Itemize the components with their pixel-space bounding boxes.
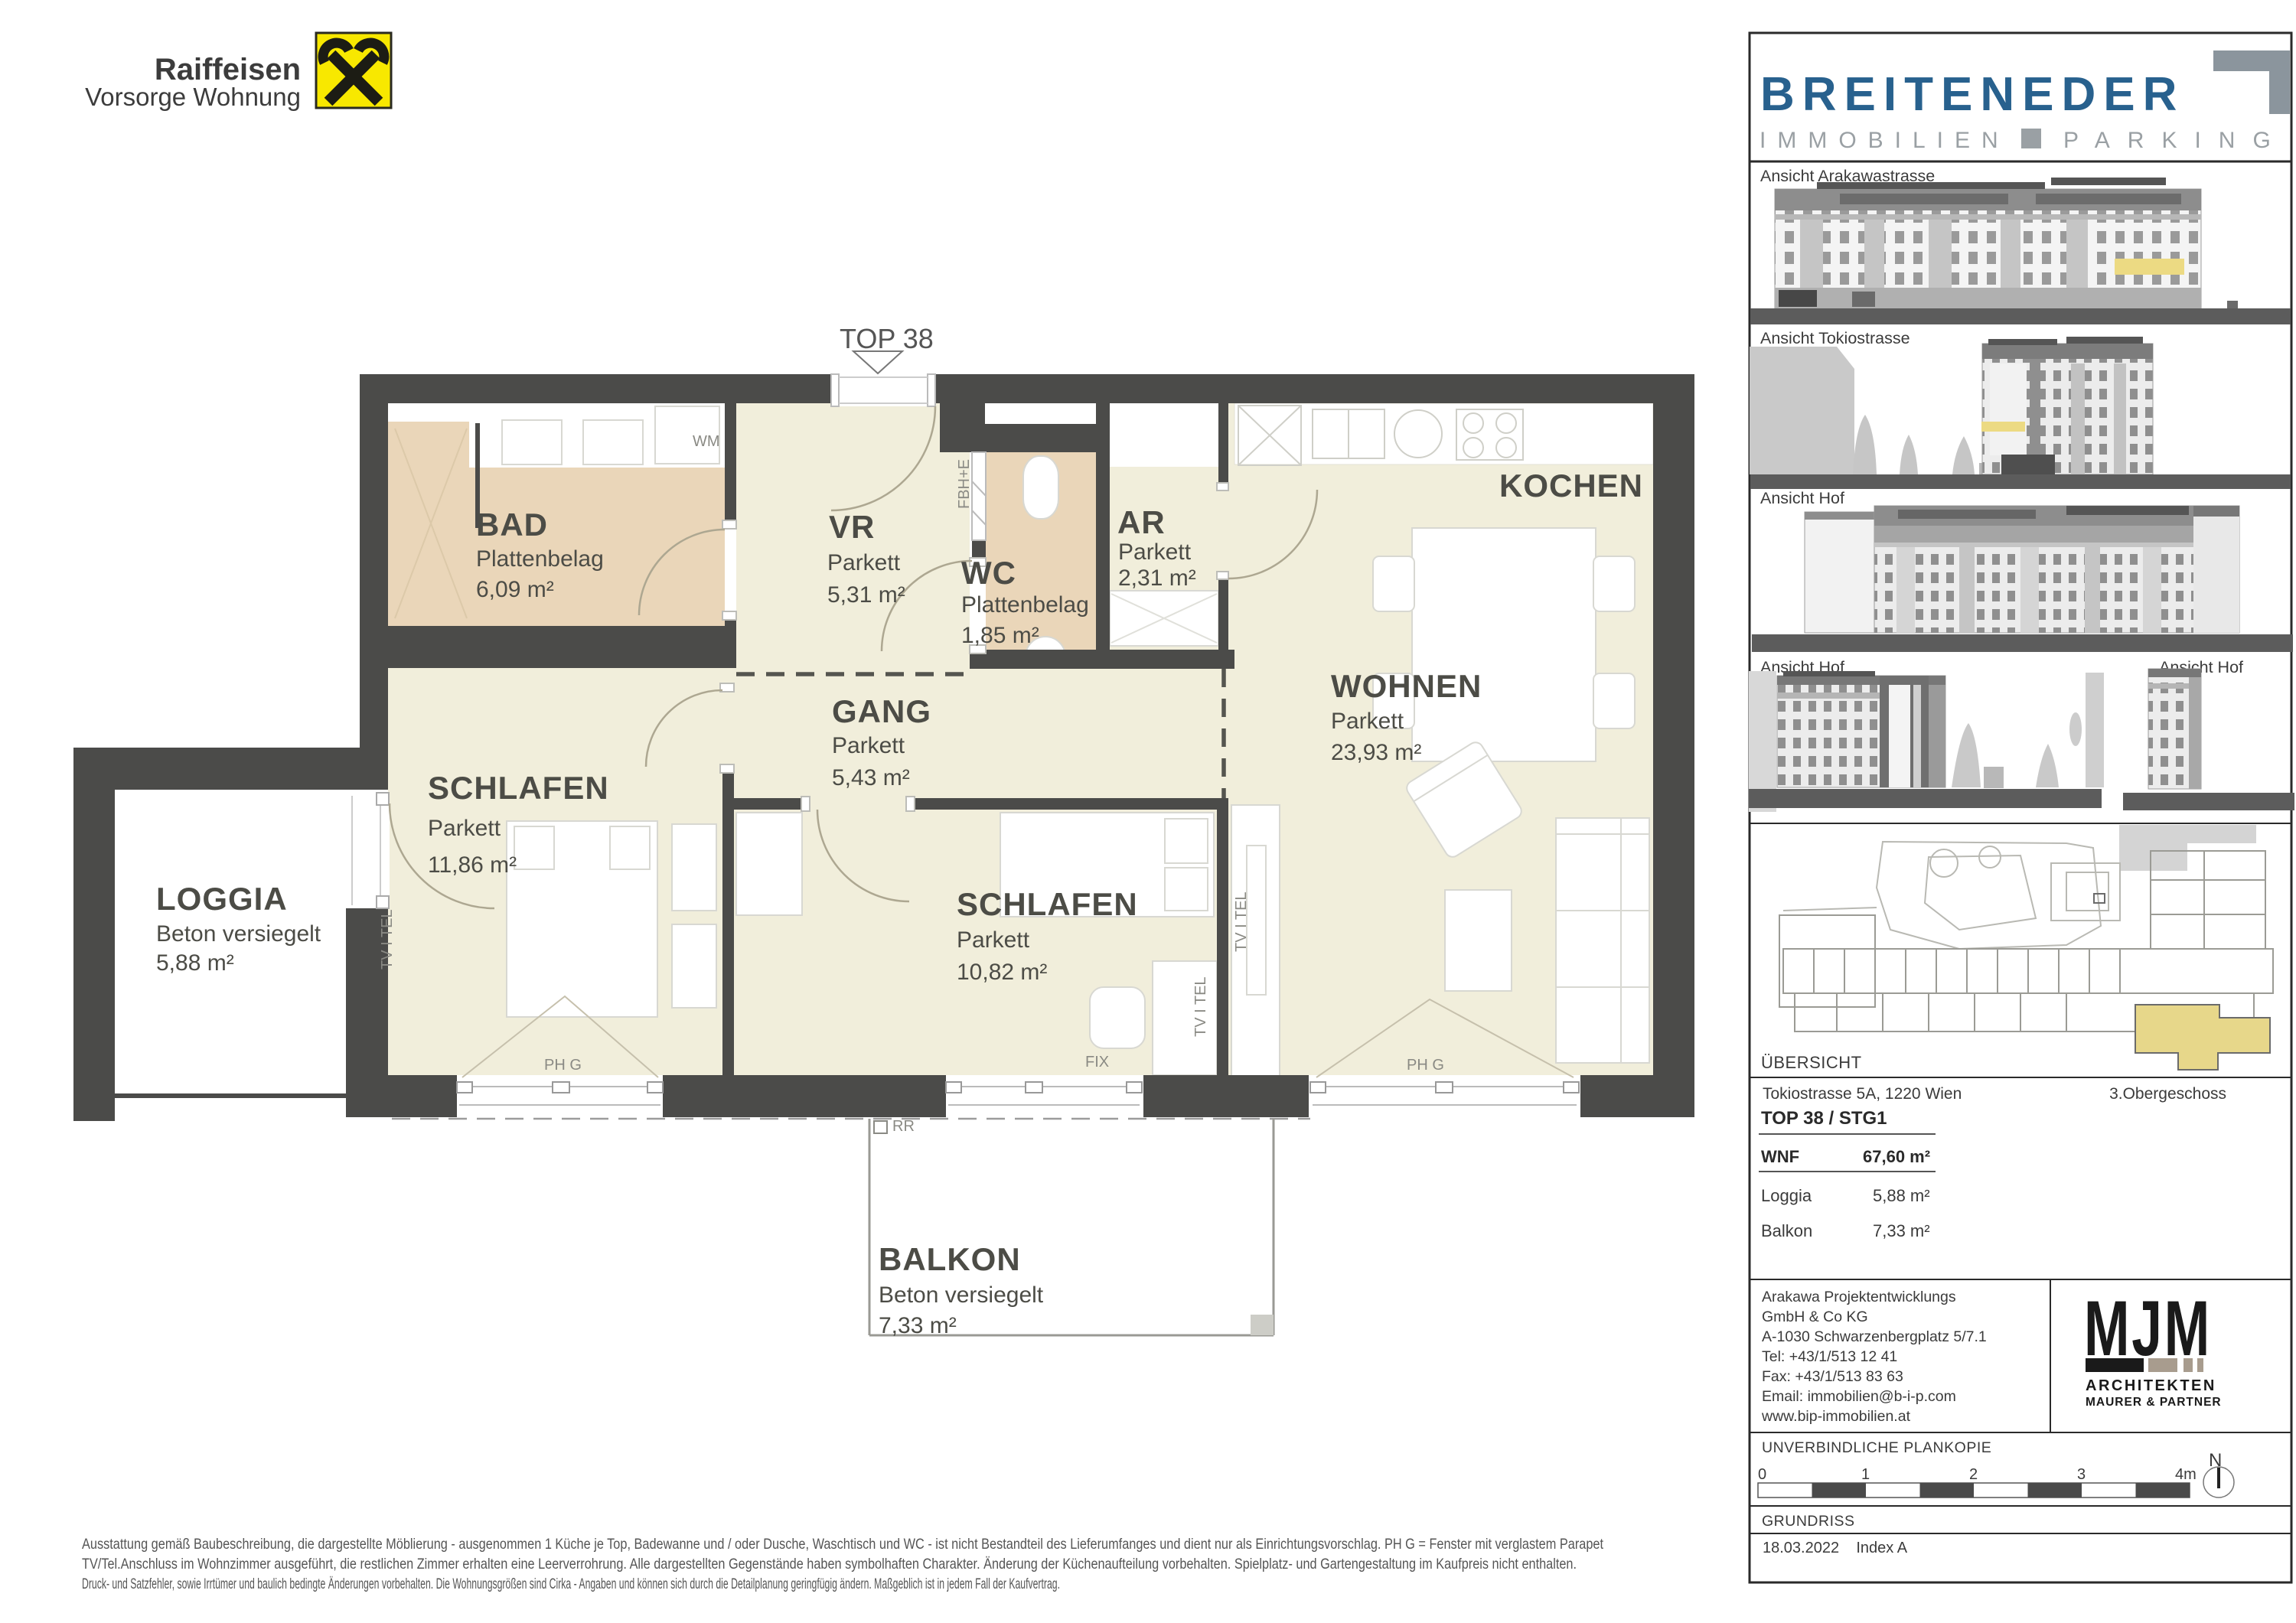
svg-text:Tokiostrasse 5A, 1220 Wien: Tokiostrasse 5A, 1220 Wien [1763, 1085, 1962, 1103]
svg-text:PH G: PH G [1407, 1057, 1444, 1074]
svg-text:RR: RR [892, 1118, 915, 1135]
svg-text:5,88 m²: 5,88 m² [156, 950, 234, 976]
svg-text:Druck- und Satzfehler, sowie I: Druck- und Satzfehler, sowie Irrtümer un… [82, 1576, 1060, 1592]
svg-text:3: 3 [2077, 1466, 2086, 1483]
svg-text:GmbH & Co KG: GmbH & Co KG [1762, 1309, 1868, 1325]
svg-text:TV I TEL: TV I TEL [1233, 891, 1250, 952]
svg-text:5,31 m²: 5,31 m² [827, 582, 905, 608]
svg-text:BALKON: BALKON [879, 1241, 1021, 1277]
svg-text:TV I TEL: TV I TEL [379, 909, 396, 970]
svg-text:18.03.2022 Index A: 18.03.2022 Index A [1763, 1540, 1908, 1556]
svg-text:1,85 m²: 1,85 m² [961, 623, 1039, 648]
svg-text:2: 2 [1969, 1466, 1978, 1483]
svg-text:6,09 m²: 6,09 m² [476, 577, 554, 602]
svg-text:Plattenbelag: Plattenbelag [961, 592, 1089, 618]
svg-text:7,33 m²: 7,33 m² [1873, 1221, 1930, 1240]
svg-text:FIX: FIX [1085, 1054, 1109, 1071]
svg-text:TV/Tel.Anschluss im Wohnzimmer: TV/Tel.Anschluss im Wohnzimmer ausgeführ… [82, 1556, 1577, 1572]
svg-text:BAD: BAD [476, 507, 548, 543]
svg-text:TV I TEL: TV I TEL [1192, 976, 1209, 1037]
svg-text:AR: AR [1117, 504, 1166, 540]
svg-text:Beton versiegelt: Beton versiegelt [156, 921, 321, 947]
svg-text:Fax: +43/1/513 83 63: Fax: +43/1/513 83 63 [1762, 1368, 1903, 1385]
svg-text:Ansicht Tokiostrasse: Ansicht Tokiostrasse [1760, 329, 1910, 347]
svg-text:Parkett: Parkett [827, 550, 901, 575]
svg-text:Parkett: Parkett [1118, 539, 1192, 565]
svg-text:5,88 m²: 5,88 m² [1873, 1186, 1930, 1205]
svg-text:Email: immobilien@b-i-p.com: Email: immobilien@b-i-p.com [1762, 1388, 1956, 1405]
svg-text:5,43 m²: 5,43 m² [832, 765, 910, 790]
svg-text:Parkett: Parkett [1331, 709, 1404, 734]
svg-text:www.bip-immobilien.at: www.bip-immobilien.at [1761, 1408, 1911, 1425]
svg-text:11,86 m²: 11,86 m² [428, 852, 517, 878]
svg-text:KOCHEN: KOCHEN [1499, 468, 1643, 504]
svg-text:Ansicht Hof: Ansicht Hof [1760, 489, 1844, 507]
svg-text:1: 1 [1861, 1466, 1870, 1483]
svg-text:WC: WC [961, 555, 1016, 591]
svg-text:Arakawa Projektentwicklungs: Arakawa Projektentwicklungs [1762, 1289, 1956, 1305]
svg-text:SCHLAFEN: SCHLAFEN [428, 770, 609, 806]
svg-text:WOHNEN: WOHNEN [1331, 668, 1482, 704]
svg-text:4m: 4m [2175, 1466, 2197, 1483]
svg-text:WM: WM [693, 433, 720, 450]
svg-text:Beton versiegelt: Beton versiegelt [879, 1282, 1044, 1308]
svg-text:GRUNDRISS: GRUNDRISS [1762, 1513, 1855, 1530]
svg-text:GANG: GANG [832, 693, 931, 729]
svg-text:FBH+E: FBH+E [956, 459, 973, 509]
svg-text:TOP 38: TOP 38 [840, 323, 934, 354]
svg-text:LOGGIA: LOGGIA [156, 881, 288, 917]
svg-text:UNVERBINDLICHE PLANKOPIE: UNVERBINDLICHE PLANKOPIE [1762, 1439, 1991, 1456]
svg-text:3.Obergeschoss: 3.Obergeschoss [2109, 1085, 2226, 1103]
svg-text:Loggia: Loggia [1761, 1186, 1812, 1205]
svg-text:IMMOBILIEN: IMMOBILIEN [1760, 128, 2010, 153]
svg-text:Tel: +43/1/513 12 41: Tel: +43/1/513 12 41 [1762, 1348, 1897, 1365]
svg-text:Balkon: Balkon [1761, 1221, 1812, 1240]
svg-text:Parkett: Parkett [428, 816, 501, 841]
svg-text:ARCHITEKTEN: ARCHITEKTEN [2086, 1377, 2216, 1394]
svg-text:67,60 m²: 67,60 m² [1863, 1147, 1930, 1166]
svg-text:SCHLAFEN: SCHLAFEN [957, 886, 1138, 922]
svg-text:PH G: PH G [544, 1057, 582, 1074]
svg-text:TOP 38 / STG1: TOP 38 / STG1 [1761, 1108, 1887, 1129]
svg-text:Raiffeisen: Raiffeisen [155, 53, 301, 86]
svg-text:7,33 m²: 7,33 m² [879, 1313, 957, 1338]
svg-text:Plattenbelag: Plattenbelag [476, 546, 604, 572]
svg-text:ÜBERSICHT: ÜBERSICHT [1761, 1053, 1862, 1072]
svg-text:10,82 m²: 10,82 m² [957, 960, 1047, 985]
svg-text:BREITENEDER: BREITENEDER [1760, 68, 2184, 121]
svg-text:VR: VR [829, 509, 875, 545]
svg-text:Parkett: Parkett [957, 927, 1030, 953]
svg-text:23,93 m²: 23,93 m² [1331, 740, 1421, 765]
svg-text:Parkett: Parkett [832, 733, 905, 758]
svg-text:Vorsorge Wohnung: Vorsorge Wohnung [85, 83, 301, 111]
svg-text:A-1030 Schwarzenbergplatz 5/7.: A-1030 Schwarzenbergplatz 5/7.1 [1762, 1328, 1987, 1345]
svg-text:MAURER & PARTNER: MAURER & PARTNER [2086, 1396, 2222, 1409]
svg-text:WNF: WNF [1761, 1147, 1799, 1166]
svg-text:0: 0 [1758, 1466, 1766, 1483]
svg-text:Ausstattung gemäß Baubeschreib: Ausstattung gemäß Baubeschreibung, die d… [82, 1536, 1603, 1553]
svg-text:PARKING: PARKING [2063, 128, 2288, 153]
svg-text:2,31 m²: 2,31 m² [1118, 565, 1196, 591]
